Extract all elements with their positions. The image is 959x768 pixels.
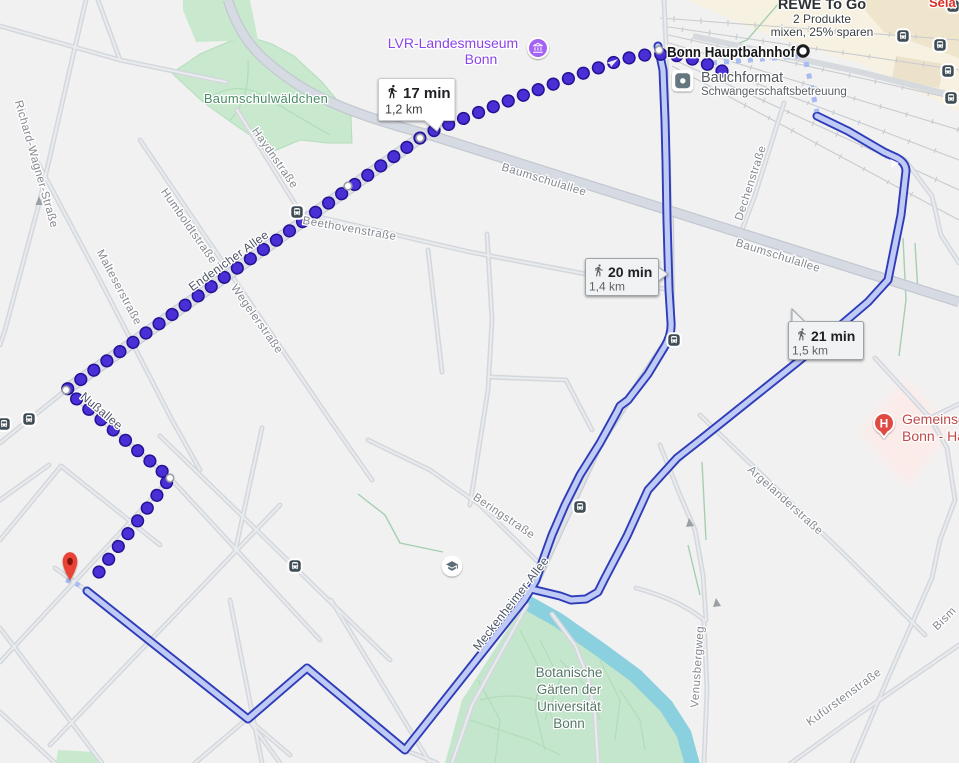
svg-text:Bauchformat: Bauchformat <box>701 70 783 86</box>
svg-text:mixen, 25% sparen: mixen, 25% sparen <box>771 25 874 39</box>
svg-text:Bonn: Bonn <box>465 51 498 67</box>
svg-text:Schwangerschaftsbetreuung: Schwangerschaftsbetreuung <box>701 86 847 98</box>
svg-text:Bonn - Ha: Bonn - Ha <box>902 428 959 444</box>
svg-text:2 Produkte: 2 Produkte <box>793 12 851 26</box>
svg-text:1,5 km: 1,5 km <box>792 344 828 358</box>
svg-text:Gemeinsc: Gemeinsc <box>902 411 959 427</box>
svg-text:20 min: 20 min <box>608 264 652 280</box>
svg-text:Bonn Hauptbahnhof: Bonn Hauptbahnhof <box>667 44 796 61</box>
svg-text:Botanische: Botanische <box>536 665 603 680</box>
svg-text:H: H <box>880 417 889 431</box>
svg-text:LVR-Landesmuseum: LVR-Landesmuseum <box>388 35 518 51</box>
svg-text:Baumschulwäldchen: Baumschulwäldchen <box>204 91 328 106</box>
svg-text:21 min: 21 min <box>811 328 855 344</box>
svg-text:17 min: 17 min <box>403 85 451 102</box>
svg-text:Bonn: Bonn <box>553 716 585 731</box>
svg-text:Gärten der: Gärten der <box>537 682 602 697</box>
svg-text:Sela: Sela <box>929 0 957 10</box>
svg-text:1,4 km: 1,4 km <box>589 280 625 294</box>
svg-text:1,2 km: 1,2 km <box>385 103 423 117</box>
svg-text:Universität: Universität <box>537 699 601 714</box>
